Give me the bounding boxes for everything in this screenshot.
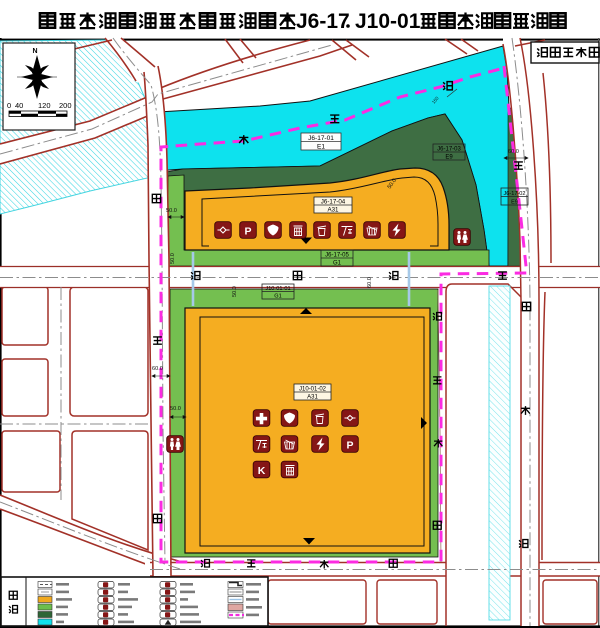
svg-text:J6-17-04: J6-17-04 xyxy=(321,198,346,205)
svg-text:J6-17-02: J6-17-02 xyxy=(503,191,525,197)
svg-text:A31: A31 xyxy=(327,207,339,214)
svg-text:60.0: 60.0 xyxy=(152,366,163,372)
svg-text:J6-17-01: J6-17-01 xyxy=(308,135,334,142)
svg-text:J6-17-05: J6-17-05 xyxy=(325,252,349,258)
svg-text:60.0: 60.0 xyxy=(508,149,519,155)
svg-text:E9: E9 xyxy=(445,155,453,161)
svg-text:J10-01: J10-01 xyxy=(355,10,421,33)
svg-text:K: K xyxy=(258,465,266,477)
svg-text:50.0: 50.0 xyxy=(170,253,176,264)
svg-text:G1: G1 xyxy=(333,261,342,267)
svg-text:A31: A31 xyxy=(307,395,318,401)
svg-text:P: P xyxy=(346,439,353,451)
svg-text:0: 0 xyxy=(7,101,11,110)
svg-text:G1: G1 xyxy=(274,294,281,300)
svg-text:E9: E9 xyxy=(511,199,518,205)
svg-text:50.0: 50.0 xyxy=(166,208,177,214)
svg-text:E1: E1 xyxy=(317,144,325,151)
svg-text:J10-01-01: J10-01-01 xyxy=(265,286,290,292)
svg-text:J6-17-03: J6-17-03 xyxy=(437,146,461,152)
svg-text:60.0: 60.0 xyxy=(367,277,373,288)
svg-text:P: P xyxy=(244,225,251,237)
svg-text:200: 200 xyxy=(59,101,72,110)
svg-text:J6-17: J6-17 xyxy=(296,10,350,33)
svg-text:50.0: 50.0 xyxy=(232,286,238,297)
svg-text:50.0: 50.0 xyxy=(170,406,181,412)
svg-text:J10-01-02: J10-01-02 xyxy=(299,386,327,392)
svg-text:N: N xyxy=(32,48,37,55)
svg-text:120: 120 xyxy=(38,101,51,110)
svg-text:40: 40 xyxy=(15,101,23,110)
